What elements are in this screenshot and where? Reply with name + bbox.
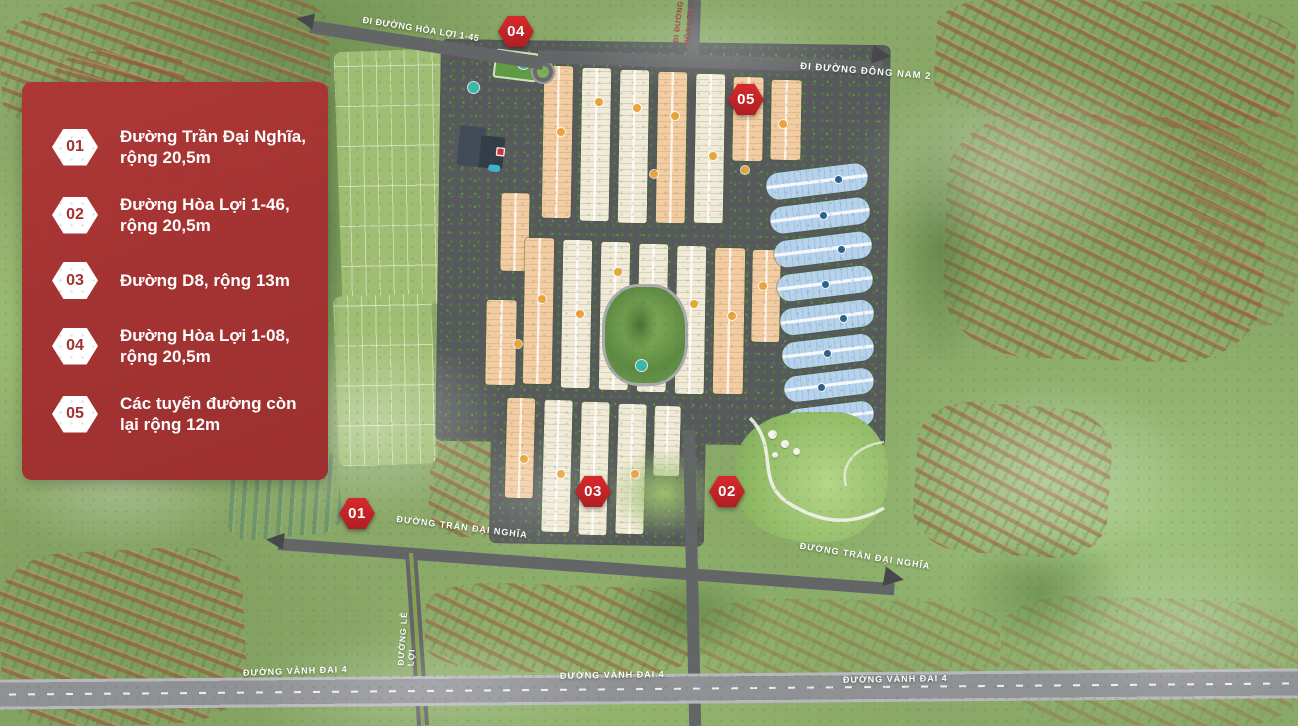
marker-hexagon: 04 [498,16,534,47]
pool [488,164,501,172]
mixed-use-tower [455,119,521,183]
block-badge [690,300,698,308]
tent [772,452,778,458]
housing-block [542,66,574,218]
block-badge [671,112,679,120]
legend-item-02: 02 Đường Hòa Lợi 1-46, rộng 20,5m [52,194,328,236]
central-park-grove [622,300,658,350]
block-badge [779,120,787,128]
haze-patch [430,430,650,560]
block-badge [576,310,584,318]
haze-patch [560,0,860,90]
block-badge [633,104,641,112]
housing-block [618,70,650,223]
village-patch [1195,95,1298,325]
housing-block [770,80,801,161]
map-marker-03: 03 [575,476,611,507]
housing-block [694,74,726,223]
map-marker-01: 01 [339,498,375,529]
marker-hexagon: 02 [709,476,745,507]
housing-block [580,68,612,221]
block-badge [514,340,522,348]
legend-hexagon: 05 [52,396,98,433]
block-badge [759,282,767,290]
tent [793,448,800,455]
block-badge [595,98,603,106]
legend-hexagon: 01 [52,129,98,166]
marker-hexagon: 03 [575,476,611,507]
legend-label: Đường Hòa Lợi 1-08, rộng 20,5m [120,325,290,367]
legend-item-05: 05 Các tuyến đường còn lại rộng 12m [52,393,328,435]
housing-block [656,72,688,223]
legend-item-04: 04 Đường Hòa Lợi 1-08, rộng 20,5m [52,325,328,367]
block-badge-blue [840,315,847,322]
marker-hexagon: 01 [339,498,375,529]
legend-label: Đường Hòa Lợi 1-46, rộng 20,5m [120,194,290,236]
block-badge [741,166,749,174]
block-badge [557,128,565,136]
block-badge-blue [820,212,827,219]
block-badge [614,268,622,276]
block-badge [728,312,736,320]
event-lawn-park [736,412,888,542]
housing-block [751,250,781,342]
legend-label: Đường Trần Đại Nghĩa, rộng 20,5m [120,126,306,168]
block-badge-blue [824,350,831,357]
block-badge-blue [818,384,825,391]
map-marker-04: 04 [498,16,534,47]
legend-panel: 01 Đường Trần Đại Nghĩa, rộng 20,5m 02 Đ… [22,82,328,480]
road-label-tran-dai-nghia-east: ĐƯỜNG TRẦN ĐẠI NGHĨA [799,541,931,572]
park-path [736,412,888,542]
amenity-badge [636,360,647,371]
tent [768,430,777,439]
block-badge-blue [822,281,829,288]
masterplan-map: ĐI ĐƯỜNG HÒA LỢI 1-45 ĐI ĐƯỜNG HÒA LỢI 1… [0,0,1298,726]
legend-item-01: 01 Đường Trần Đại Nghĩa, rộng 20,5m [52,126,328,168]
legend-hexagon: 04 [52,328,98,365]
legend-label: Đường D8, rộng 13m [120,270,290,291]
legend-hexagon: 03 [52,262,98,299]
helipad [496,147,506,157]
tent [781,440,789,448]
block-badge-blue [835,176,842,183]
block-badge [538,295,546,303]
map-marker-02: 02 [709,476,745,507]
block-badge [709,152,717,160]
housing-block [523,238,555,384]
amenity-badge [468,82,479,93]
block-badge-blue [838,246,845,253]
map-marker-05: 05 [728,84,764,115]
legend-hexagon: 02 [52,197,98,234]
road-label-vanh-dai-4-c: ĐƯỜNG VÀNH ĐAI 4 [843,673,948,685]
haze-patch [850,60,1190,260]
housing-block [713,248,746,395]
housing-block [485,300,516,386]
legend-item-03: 03 Đường D8, rộng 13m [52,262,328,299]
block-badge [650,170,658,178]
marker-hexagon: 05 [728,84,764,115]
legend-label: Các tuyến đường còn lại rộng 12m [120,393,296,435]
